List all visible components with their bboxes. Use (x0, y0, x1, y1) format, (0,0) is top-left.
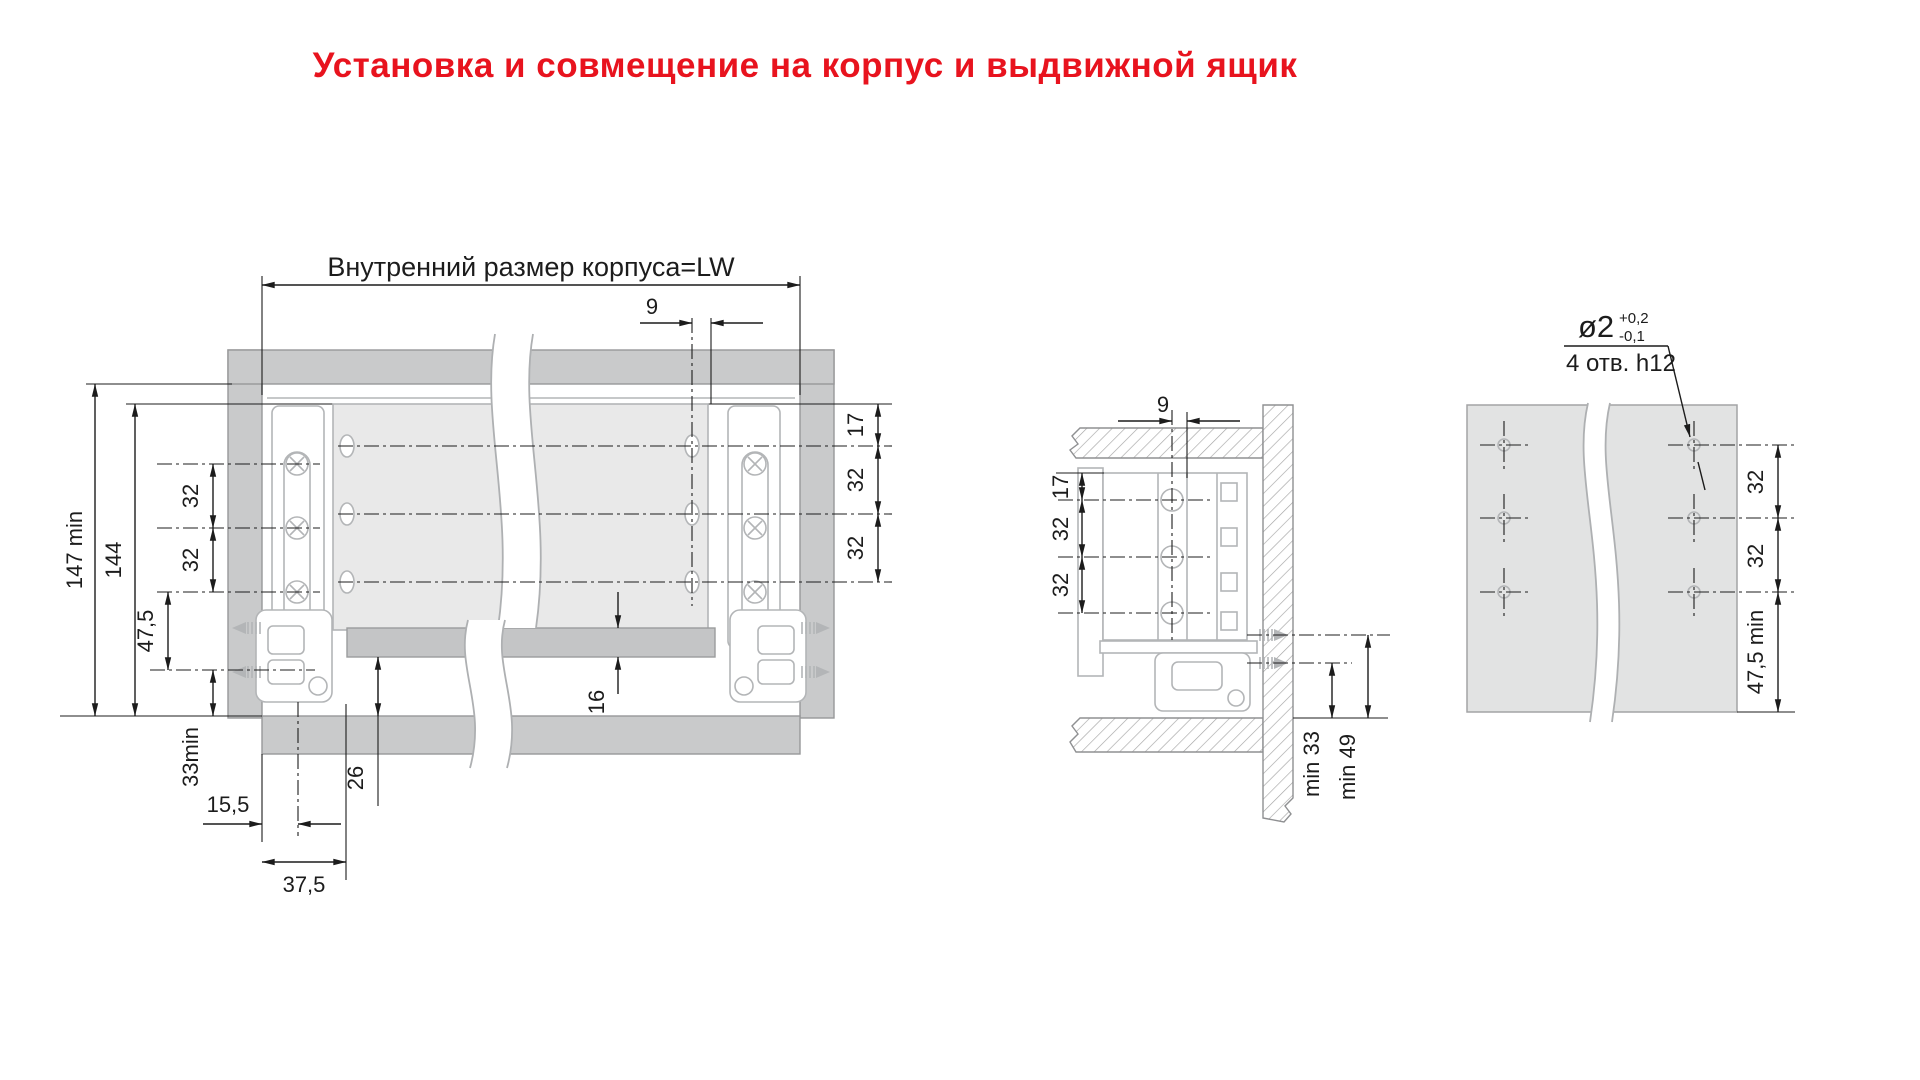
dim-label-47-5min: 47,5 min (1743, 610, 1768, 694)
dim-label-32-a: 32 (1743, 470, 1768, 494)
drill-view: ø2 +0,2 -0,1 4 отв. h12 32 32 47,5 min (1467, 309, 1795, 722)
front-view: Внутренний размер корпуса=LW 9 147 min 1… (60, 252, 892, 897)
dim-label-15-5: 15,5 (207, 792, 250, 817)
callout-tol-minus: -0,1 (1619, 328, 1645, 345)
dim-33min: 33min (178, 670, 213, 787)
drawing-page: Установка и совмещение на корпус и выдви… (0, 0, 1920, 1080)
dim-label-32-b: 32 (178, 548, 203, 572)
callout-diameter: ø2 (1578, 309, 1614, 344)
dim-label-min33: min 33 (1299, 731, 1324, 797)
dim-144: 144 (101, 404, 135, 716)
dim-label-17: 17 (1048, 475, 1073, 499)
dim-label-17: 17 (843, 413, 868, 437)
dim-label-32-b: 32 (1048, 573, 1073, 597)
dim-right-stack-drill: 32 32 47,5 min (1737, 445, 1795, 712)
dim-label-32-c: 32 (843, 468, 868, 492)
dim-label-16: 16 (584, 690, 609, 714)
drawer-bottom-board (347, 628, 715, 657)
technical-drawing-canvas: Внутренний размер корпуса=LW 9 147 min 1… (0, 0, 1920, 1080)
dim-label-9: 9 (646, 294, 658, 319)
dim-label-lw: Внутренний размер корпуса=LW (327, 252, 735, 282)
dim-label-32-d: 32 (843, 536, 868, 560)
dim-label-32-a: 32 (1048, 517, 1073, 541)
section-front-panel (1263, 405, 1293, 822)
section-view: 9 17 32 32 (1048, 392, 1390, 822)
dim-label-37-5: 37,5 (283, 872, 326, 897)
dim-label-26: 26 (343, 766, 368, 790)
dim-label-32-b: 32 (1743, 544, 1768, 568)
dim-label-9: 9 (1157, 392, 1169, 417)
cabinet-bottom-panel (262, 716, 800, 754)
section-bottom-panel (1070, 718, 1263, 752)
dim-label-147min: 147 min (62, 511, 87, 589)
dim-label-33min: 33min (178, 727, 203, 787)
callout-tol-plus: +0,2 (1619, 310, 1649, 327)
section-top-panel (1070, 428, 1263, 458)
callout-holes-count: 4 отв. h12 (1566, 350, 1676, 377)
dim-label-min49: min 49 (1335, 734, 1360, 800)
section-slide-assembly (1100, 629, 1288, 711)
dim-label-47-5: 47,5 (133, 610, 158, 653)
dim-label-32-a: 32 (178, 484, 203, 508)
dim-label-144: 144 (101, 542, 126, 579)
